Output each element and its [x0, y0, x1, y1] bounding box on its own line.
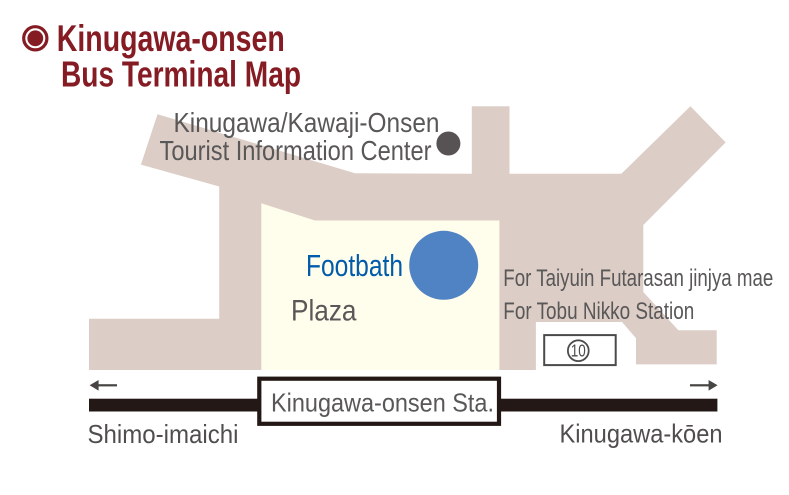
svg-text:Footbath: Footbath: [306, 249, 403, 283]
svg-text:Kinugawa-kōen: Kinugawa-kōen: [560, 421, 723, 449]
svg-text:Shimo-imaichi: Shimo-imaichi: [88, 421, 239, 449]
svg-text:10: 10: [571, 341, 586, 361]
svg-text:Kinugawa/Kawaji-Onsen: Kinugawa/Kawaji-Onsen: [174, 107, 440, 138]
svg-text:Plaza: Plaza: [291, 295, 357, 328]
svg-text:Tourist Information Center: Tourist Information Center: [160, 135, 432, 166]
svg-text:Kinugawa-onsen Sta.: Kinugawa-onsen Sta.: [271, 389, 494, 417]
svg-text:For Tobu Nikko Station: For Tobu Nikko Station: [503, 298, 694, 325]
svg-text:Bus Terminal Map: Bus Terminal Map: [61, 54, 301, 95]
svg-text:For Taiyuin Futarasan jinjya m: For Taiyuin Futarasan jinjya mae: [503, 265, 773, 292]
